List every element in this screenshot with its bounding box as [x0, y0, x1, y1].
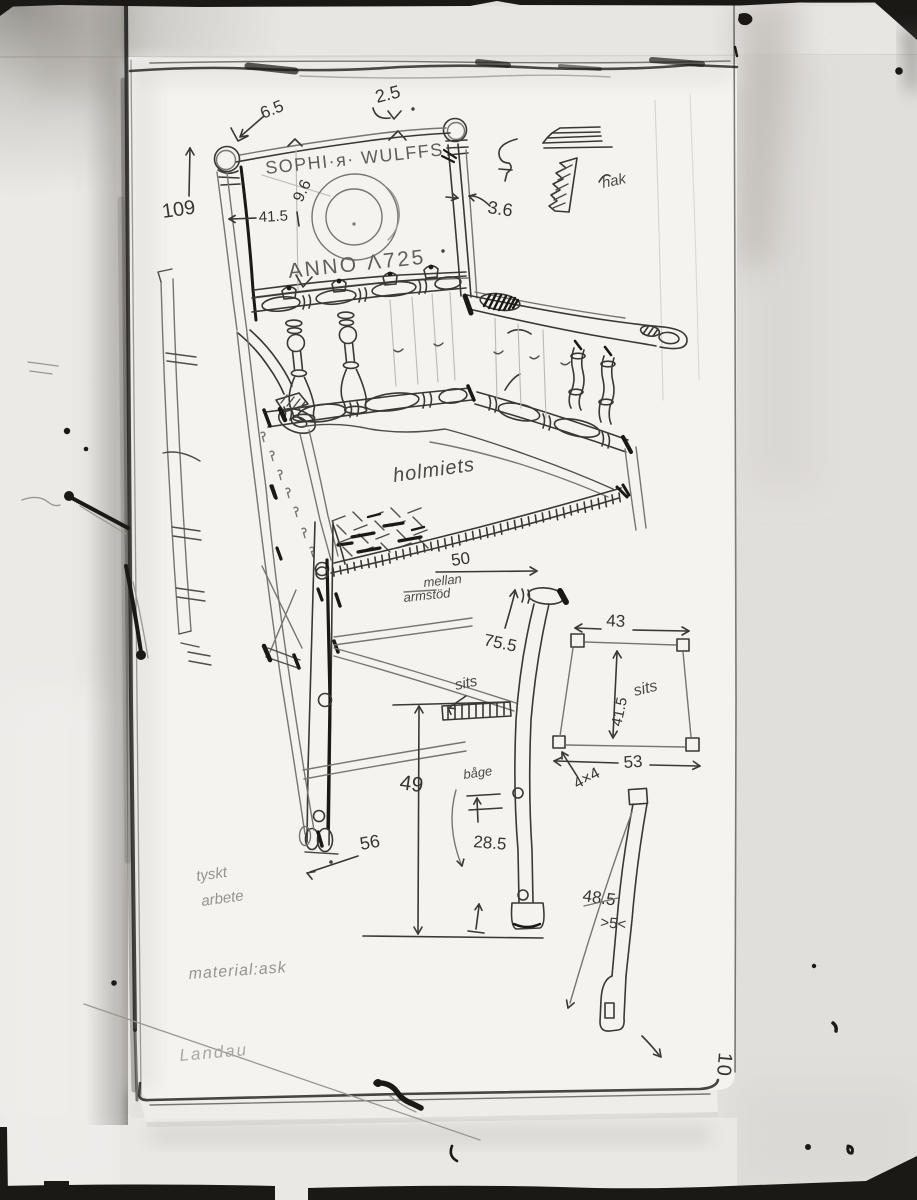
- svg-text:109: 109: [161, 197, 197, 223]
- svg-text:53: 53: [623, 752, 643, 772]
- svg-text:50: 50: [450, 549, 471, 570]
- svg-text:28.5: 28.5: [473, 832, 508, 854]
- svg-text:>5<: >5<: [600, 914, 627, 933]
- svg-text:3.6: 3.6: [486, 197, 514, 220]
- svg-text:56: 56: [358, 831, 381, 854]
- svg-text:43: 43: [606, 611, 626, 631]
- svg-text:49: 49: [398, 771, 424, 797]
- svg-text:10: 10: [712, 1052, 736, 1078]
- svg-text:41.5: 41.5: [258, 207, 288, 226]
